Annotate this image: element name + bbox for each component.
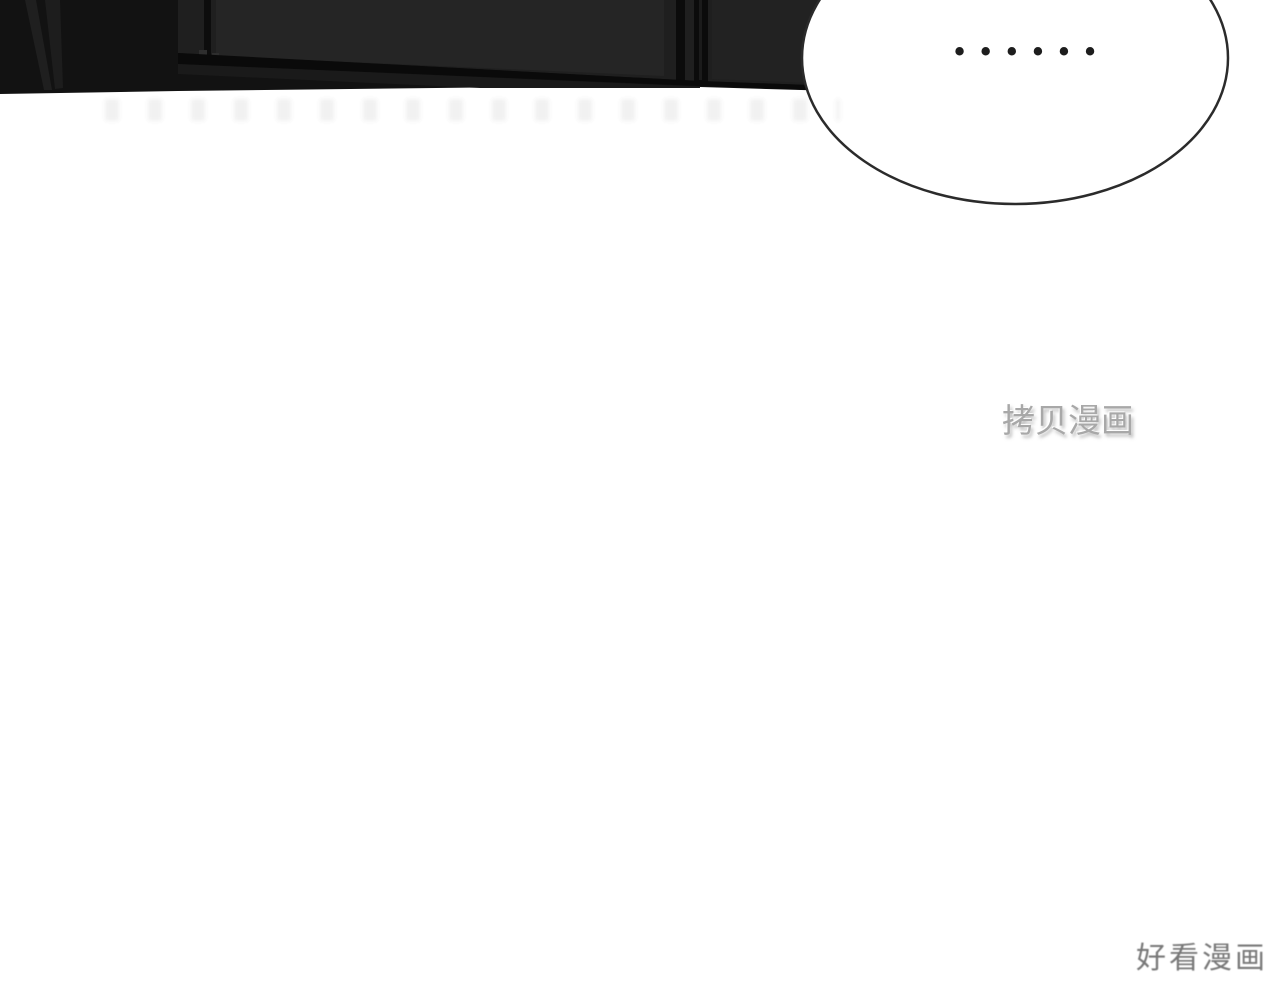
jpeg-artifact-row	[105, 99, 840, 121]
panel-frame-line	[204, 0, 211, 58]
panel-grey-block-highlight	[216, 0, 664, 76]
speech-bubble	[802, 0, 1228, 204]
panel-base	[0, 0, 836, 94]
panel-grey-block	[178, 0, 836, 86]
speech-bubble-text: ••••••	[951, 37, 1211, 67]
panel-diagonal-streak	[25, 0, 52, 90]
panel-diagonal-streak	[45, 0, 63, 89]
comic-page: •••••• 拷贝漫画 好看漫画	[0, 0, 1280, 1000]
panel-underband-shade	[178, 64, 700, 88]
watermark-kaobei-manhua: 拷贝漫画	[1002, 404, 1134, 437]
watermark-haokan-manhua: 好看漫画	[1136, 944, 1268, 974]
panel-grey-block-right	[712, 0, 836, 84]
panel-diagonal-band	[178, 53, 836, 91]
panel-small-mark	[199, 50, 207, 58]
panel-vertical-line	[694, 0, 708, 84]
panel-vertical-line	[676, 0, 685, 84]
panel-vertical-line-sheen	[699, 0, 702, 80]
panel-small-mark	[212, 53, 219, 59]
